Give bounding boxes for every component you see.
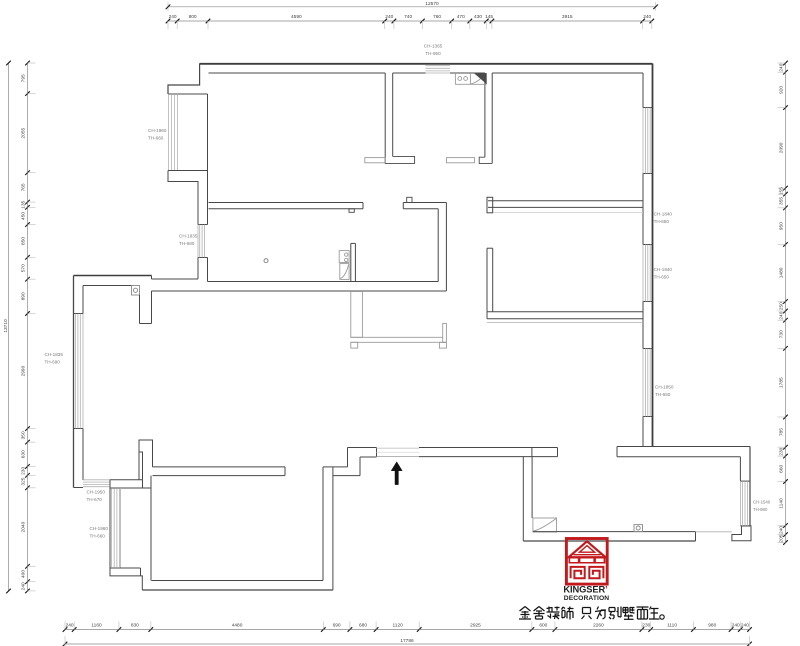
svg-text:680: 680 xyxy=(359,623,367,629)
svg-text:1110: 1110 xyxy=(667,623,677,629)
svg-text:TH-950: TH-950 xyxy=(425,51,441,56)
svg-text:TH-650: TH-650 xyxy=(654,219,670,224)
svg-text:230: 230 xyxy=(21,467,27,475)
svg-text:CH-1365: CH-1365 xyxy=(424,44,443,49)
svg-text:230: 230 xyxy=(779,447,785,455)
svg-text:325: 325 xyxy=(21,477,27,485)
svg-text:12570: 12570 xyxy=(425,1,439,7)
svg-text:795: 795 xyxy=(21,74,27,82)
svg-text:240: 240 xyxy=(779,526,785,534)
svg-text:630: 630 xyxy=(21,450,27,458)
svg-text:890: 890 xyxy=(21,292,27,300)
svg-text:355: 355 xyxy=(779,197,785,205)
svg-text:17786: 17786 xyxy=(400,638,414,644)
svg-text:CH-1840: CH-1840 xyxy=(654,267,673,272)
svg-text:CH-1950: CH-1950 xyxy=(87,489,106,494)
svg-text:2040: 2040 xyxy=(21,521,27,532)
svg-text:3915: 3915 xyxy=(562,14,573,20)
svg-text:205: 205 xyxy=(779,534,785,542)
svg-text:760: 760 xyxy=(433,14,441,20)
svg-text:155: 155 xyxy=(779,187,785,195)
svg-text:980: 980 xyxy=(708,623,716,629)
svg-text:240: 240 xyxy=(732,623,740,629)
svg-text:600: 600 xyxy=(539,623,547,629)
svg-text:4480: 4480 xyxy=(232,623,243,629)
svg-text:1480: 1480 xyxy=(779,267,785,278)
svg-text:TH-650: TH-650 xyxy=(654,275,670,280)
svg-text:1140: 1140 xyxy=(779,498,785,509)
svg-text:740: 740 xyxy=(404,14,412,20)
svg-text:TH-980: TH-980 xyxy=(753,507,768,512)
svg-text:CH-1850: CH-1850 xyxy=(655,385,674,390)
svg-text:2925: 2925 xyxy=(470,623,481,629)
svg-text:TH-690: TH-690 xyxy=(45,360,61,365)
svg-text:CH-1960: CH-1960 xyxy=(148,128,167,133)
svg-text:250: 250 xyxy=(779,302,785,310)
svg-text:350: 350 xyxy=(21,431,27,439)
svg-text:785: 785 xyxy=(779,428,785,436)
svg-text:240: 240 xyxy=(779,311,785,319)
svg-text:230: 230 xyxy=(642,623,650,629)
svg-text:1160: 1160 xyxy=(91,623,102,629)
svg-text:830: 830 xyxy=(131,623,139,629)
svg-text:1785: 1785 xyxy=(779,377,785,388)
svg-text:430: 430 xyxy=(474,14,482,20)
svg-text:13710: 13710 xyxy=(3,319,9,333)
svg-text:CH-1960: CH-1960 xyxy=(90,526,109,531)
svg-text:950: 950 xyxy=(779,222,785,230)
svg-text:TH-680: TH-680 xyxy=(179,241,195,246)
svg-text:240: 240 xyxy=(741,623,749,629)
svg-text:2055: 2055 xyxy=(21,127,27,138)
svg-text:240: 240 xyxy=(385,14,393,20)
svg-text:CH-1840: CH-1840 xyxy=(654,212,673,217)
svg-text:660: 660 xyxy=(779,464,785,472)
svg-text:TH-660: TH-660 xyxy=(90,534,106,539)
svg-text:135: 135 xyxy=(21,200,27,208)
svg-text:240: 240 xyxy=(779,63,785,71)
svg-text:2990: 2990 xyxy=(21,365,27,376)
svg-text:765: 765 xyxy=(21,183,27,191)
svg-text:2260: 2260 xyxy=(593,623,604,629)
svg-text:850: 850 xyxy=(21,237,27,245)
svg-text:920: 920 xyxy=(779,86,785,94)
svg-text:CH-1835: CH-1835 xyxy=(45,352,64,357)
svg-text:1120: 1120 xyxy=(392,623,403,629)
svg-text:470: 470 xyxy=(457,14,465,20)
svg-text:TH-650: TH-650 xyxy=(655,392,671,397)
svg-text:240: 240 xyxy=(66,623,74,629)
svg-text:KINGSER’: KINGSER’ xyxy=(563,584,607,594)
svg-text:2090: 2090 xyxy=(779,142,785,153)
svg-text:CH-1835: CH-1835 xyxy=(179,234,198,239)
svg-text:240: 240 xyxy=(21,582,27,590)
svg-text:4590: 4590 xyxy=(291,14,302,20)
svg-text:240: 240 xyxy=(169,14,177,20)
svg-text:CH-1540: CH-1540 xyxy=(753,499,771,504)
svg-text:450: 450 xyxy=(21,212,27,220)
svg-text:DECORATION: DECORATION xyxy=(564,595,610,602)
svg-text:800: 800 xyxy=(189,14,197,20)
svg-text:240: 240 xyxy=(643,14,651,20)
svg-text:400: 400 xyxy=(21,570,27,578)
svg-text:690: 690 xyxy=(333,623,341,629)
svg-text:TH-660: TH-660 xyxy=(148,136,164,141)
svg-text:730: 730 xyxy=(779,330,785,338)
svg-text:TH-670: TH-670 xyxy=(87,497,103,502)
svg-text:570: 570 xyxy=(21,264,27,272)
svg-text:145: 145 xyxy=(485,14,493,20)
